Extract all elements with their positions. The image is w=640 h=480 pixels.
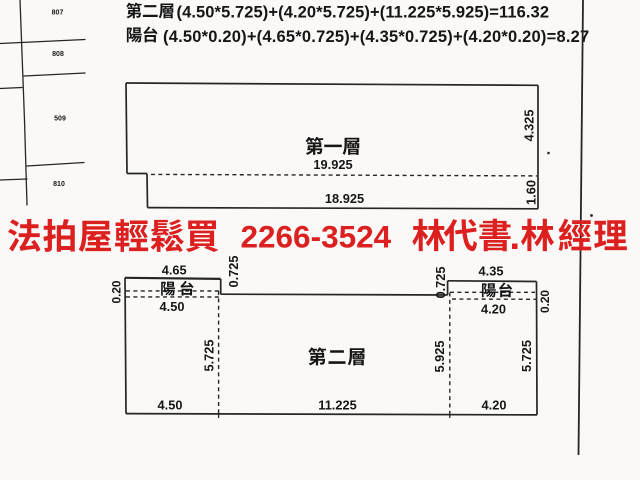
svg-text:0.725: 0.725 [433, 266, 448, 298]
svg-text:0.725: 0.725 [226, 255, 241, 287]
svg-text:807: 807 [52, 10, 64, 17]
svg-text:5.925: 5.925 [432, 340, 447, 372]
svg-text:4.325: 4.325 [522, 109, 537, 141]
svg-text:4.20: 4.20 [481, 302, 506, 317]
svg-text:18.925: 18.925 [325, 191, 364, 206]
svg-text:4.50: 4.50 [158, 398, 183, 413]
svg-text:808: 808 [52, 51, 64, 58]
svg-text:11.225: 11.225 [318, 398, 356, 413]
svg-text:(4.50*5.725)+(4.20*5.725)+(11.: (4.50*5.725)+(4.20*5.725)+(11.225*5.925)… [177, 3, 550, 21]
svg-text:5.725: 5.725 [202, 339, 217, 371]
svg-text:0.20: 0.20 [109, 280, 123, 303]
svg-text:4.65: 4.65 [162, 262, 187, 277]
svg-text:509: 509 [54, 116, 66, 123]
svg-text:19.925: 19.925 [313, 157, 352, 172]
svg-text:0.20: 0.20 [538, 290, 552, 313]
svg-text:1.60: 1.60 [524, 180, 539, 205]
svg-text:4.50: 4.50 [160, 299, 185, 314]
svg-text:4.20: 4.20 [482, 398, 507, 413]
svg-text:4.35: 4.35 [479, 263, 504, 278]
svg-text:5.725: 5.725 [519, 340, 534, 372]
svg-text:810: 810 [53, 181, 65, 188]
svg-text:(4.50*0.20)+(4.65*0.725)+(4.35: (4.50*0.20)+(4.65*0.725)+(4.35*0.725)+(4… [163, 28, 589, 46]
svg-text:2266-3524: 2266-3524 [241, 218, 392, 254]
